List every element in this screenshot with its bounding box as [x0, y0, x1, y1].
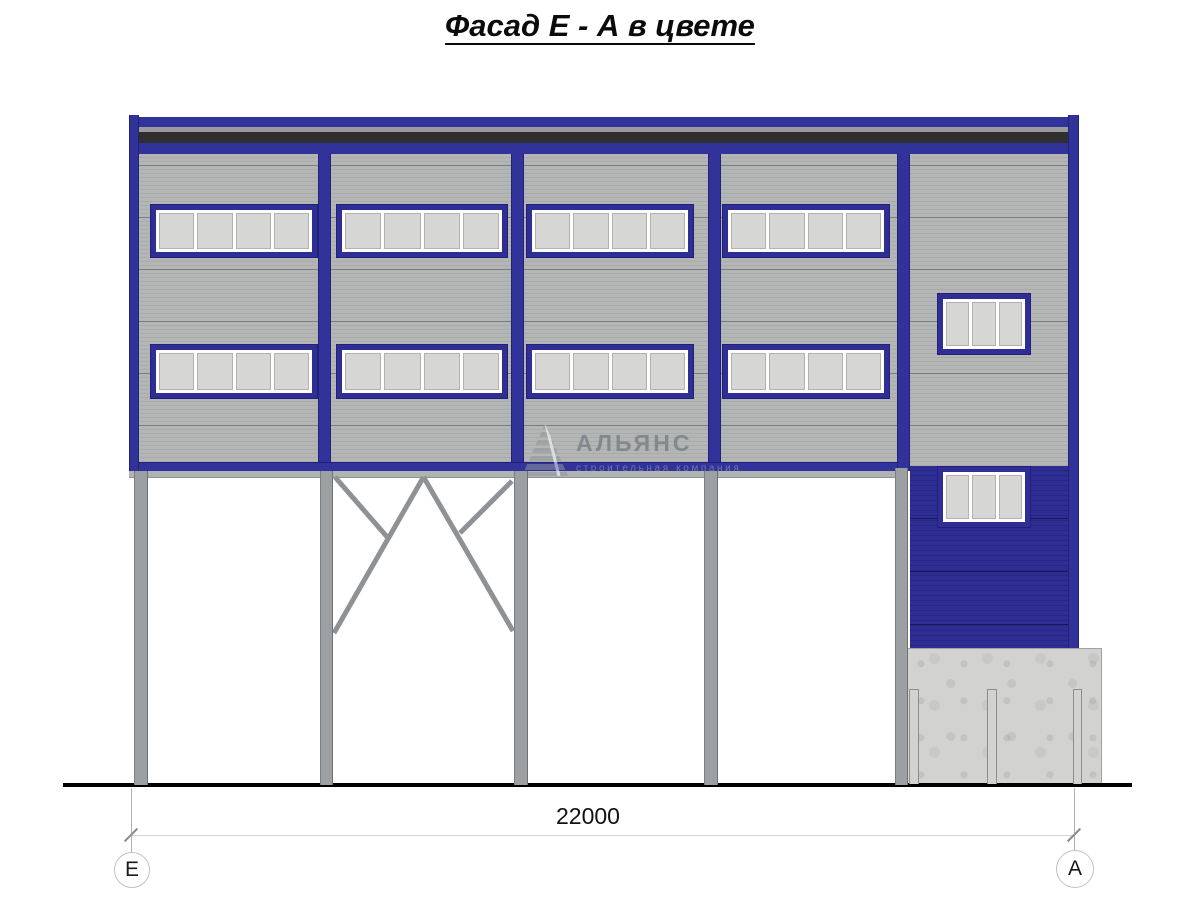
window-bay4-lower-pane-1 [731, 353, 766, 390]
window-bay4-upper-frame [728, 210, 884, 252]
window-bay2-upper-pane-2 [384, 213, 420, 249]
window-bay1-upper-pane-3 [236, 213, 271, 249]
pilaster-1 [318, 154, 331, 462]
extension-line-right [1074, 788, 1075, 852]
window-bay1-lower-pane-1 [159, 353, 194, 390]
window-bay4-upper-pane-3 [808, 213, 843, 249]
window-right-lower-glazing [946, 475, 1022, 519]
pilaster-3 [708, 154, 721, 462]
bracing-line-2 [424, 477, 514, 631]
window-bay2-upper-frame [342, 210, 502, 252]
window-bay3-upper-pane-1 [535, 213, 570, 249]
bracing-line-3 [335, 477, 388, 538]
window-bay3-lower-glazing [535, 353, 685, 390]
window-bay1-upper-glazing [159, 213, 309, 249]
window-bay4-lower-frame [728, 350, 884, 393]
window-bay2-upper-pane-3 [424, 213, 460, 249]
window-bay1-lower-pane-3 [236, 353, 271, 390]
window-bay3-lower [527, 345, 693, 398]
window-right-upper [938, 294, 1030, 354]
foundation-post-1 [909, 689, 919, 784]
window-right-upper-pane-3 [999, 302, 1022, 346]
window-bay2-lower-pane-4 [463, 353, 499, 390]
window-bay4-lower [723, 345, 889, 398]
window-bay1-upper-pane-4 [274, 213, 309, 249]
axis-marker-a: А [1056, 850, 1094, 888]
drawing-title: Фасад Е - А в цвете [0, 8, 1200, 44]
foundation-post-2 [987, 689, 997, 784]
window-bay1-upper-pane-1 [159, 213, 194, 249]
ground-line [63, 783, 1132, 787]
window-bay4-lower-pane-2 [769, 353, 804, 390]
window-bay4-lower-pane-3 [808, 353, 843, 390]
dimension-value: 22000 [528, 803, 648, 830]
window-bay3-lower-pane-3 [612, 353, 647, 390]
column-3 [514, 471, 528, 785]
pilaster-right [1068, 115, 1079, 648]
window-bay1-upper-frame [156, 210, 312, 252]
window-bay2-upper-pane-1 [345, 213, 381, 249]
parapet-top-band [129, 117, 1079, 127]
window-bay2-lower-pane-2 [384, 353, 420, 390]
window-right-lower-pane-3 [999, 475, 1022, 519]
window-bay4-upper-pane-4 [846, 213, 881, 249]
pilaster-4 [897, 154, 910, 471]
window-bay1-upper-pane-2 [197, 213, 232, 249]
bracing-line-1 [334, 477, 424, 633]
window-bay2-lower-pane-1 [345, 353, 381, 390]
window-bay3-upper [527, 205, 693, 257]
window-right-upper-pane-2 [972, 302, 995, 346]
column-5 [895, 468, 908, 785]
window-bay1-lower-pane-2 [197, 353, 232, 390]
axis-letter-a: А [1068, 857, 1082, 881]
window-bay3-lower-pane-4 [650, 353, 685, 390]
window-bay2-lower-glazing [345, 353, 499, 390]
window-bay3-upper-pane-4 [650, 213, 685, 249]
pilaster-2 [511, 154, 524, 462]
parapet-dark-strip [129, 132, 1079, 143]
window-right-lower-frame [943, 472, 1025, 522]
window-bay1-lower-frame [156, 350, 312, 393]
window-bay2-upper-glazing [345, 213, 499, 249]
facade-bottom-band [129, 462, 910, 471]
window-bay2-lower-pane-3 [424, 353, 460, 390]
window-bay1-lower [151, 345, 317, 398]
window-right-lower-pane-1 [946, 475, 969, 519]
window-bay4-upper-glazing [731, 213, 881, 249]
axis-letter-e: Е [125, 858, 139, 882]
window-bay4-lower-pane-4 [846, 353, 881, 390]
window-bay1-lower-pane-4 [274, 353, 309, 390]
window-bay3-lower-pane-2 [573, 353, 608, 390]
window-right-lower-pane-2 [972, 475, 995, 519]
window-bay3-upper-frame [532, 210, 688, 252]
window-bay1-lower-glazing [159, 353, 309, 390]
column-4 [704, 471, 718, 785]
window-bay3-upper-pane-3 [612, 213, 647, 249]
window-bay3-upper-glazing [535, 213, 685, 249]
window-bay2-lower [337, 345, 507, 398]
parapet-blue-band [129, 143, 1079, 154]
bracing-line-4 [460, 481, 512, 533]
extension-line-left [131, 788, 132, 852]
column-1 [134, 471, 148, 785]
window-bay3-lower-pane-1 [535, 353, 570, 390]
column-2 [320, 471, 333, 785]
window-bay4-upper [723, 205, 889, 257]
axis-marker-e: Е [114, 852, 150, 888]
window-bay4-upper-pane-1 [731, 213, 766, 249]
dimension-line [131, 835, 1074, 836]
window-bay2-upper-pane-4 [463, 213, 499, 249]
window-bay2-upper [337, 205, 507, 257]
window-right-lower [938, 467, 1030, 527]
window-bay2-lower-frame [342, 350, 502, 393]
foundation-post-3 [1073, 689, 1082, 784]
window-bay4-lower-glazing [731, 353, 881, 390]
window-right-upper-frame [943, 299, 1025, 349]
window-bay3-lower-frame [532, 350, 688, 393]
window-right-upper-pane-1 [946, 302, 969, 346]
window-bay3-upper-pane-2 [573, 213, 608, 249]
pilaster-left [129, 115, 139, 471]
window-right-upper-glazing [946, 302, 1022, 346]
window-bay1-upper [151, 205, 317, 257]
window-bay4-upper-pane-2 [769, 213, 804, 249]
elevation-drawing-canvas: Фасад Е - А в цвете АЛЬЯНС [0, 0, 1200, 900]
